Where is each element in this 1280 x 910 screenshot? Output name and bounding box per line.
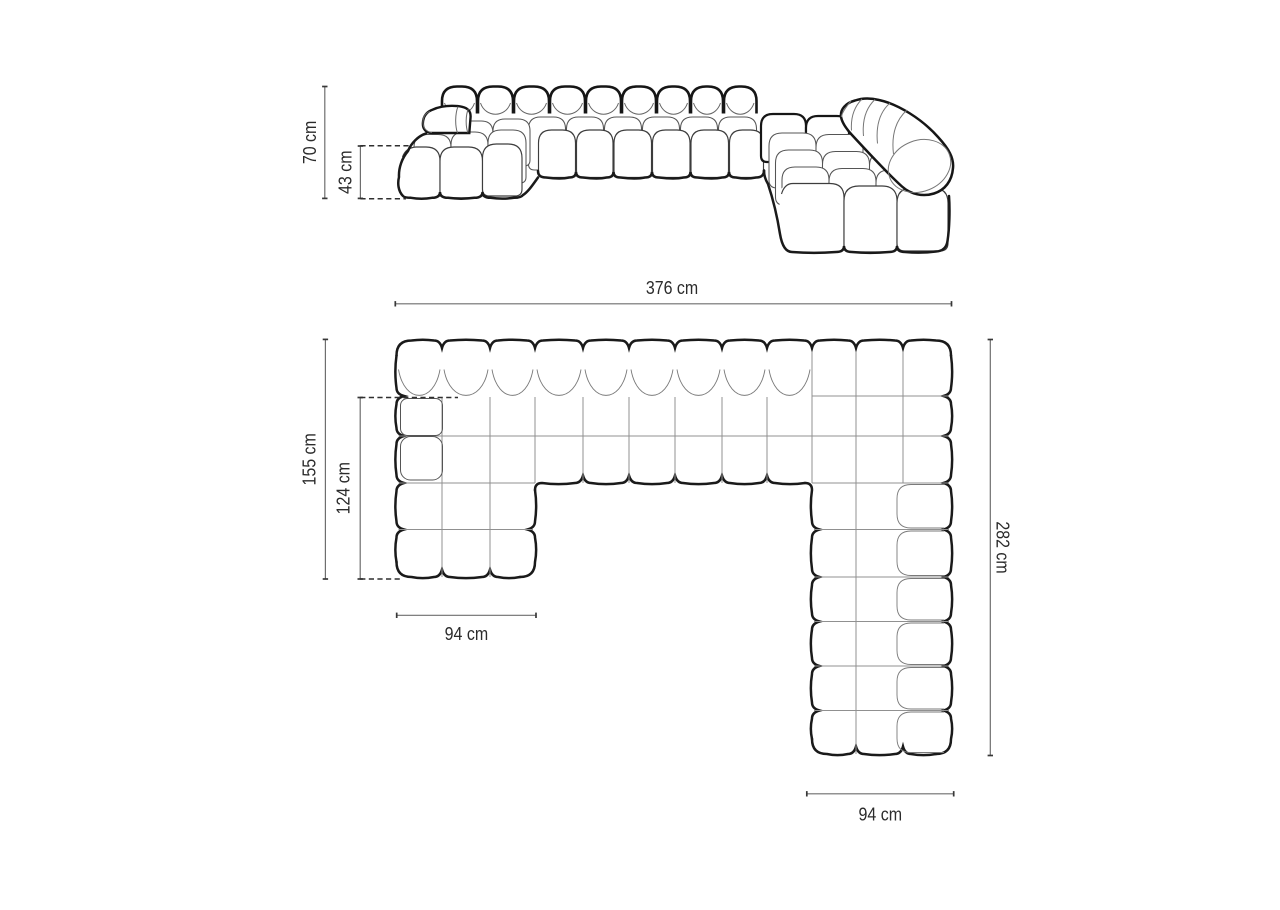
svg-text:155 cm: 155 cm [299,433,319,485]
svg-text:94 cm: 94 cm [859,804,903,824]
svg-text:282 cm: 282 cm [993,521,1013,573]
svg-text:94 cm: 94 cm [445,624,489,644]
svg-text:70 cm: 70 cm [300,121,320,165]
svg-text:376 cm: 376 cm [646,278,698,298]
svg-text:124 cm: 124 cm [334,462,354,514]
svg-text:43 cm: 43 cm [336,150,356,194]
